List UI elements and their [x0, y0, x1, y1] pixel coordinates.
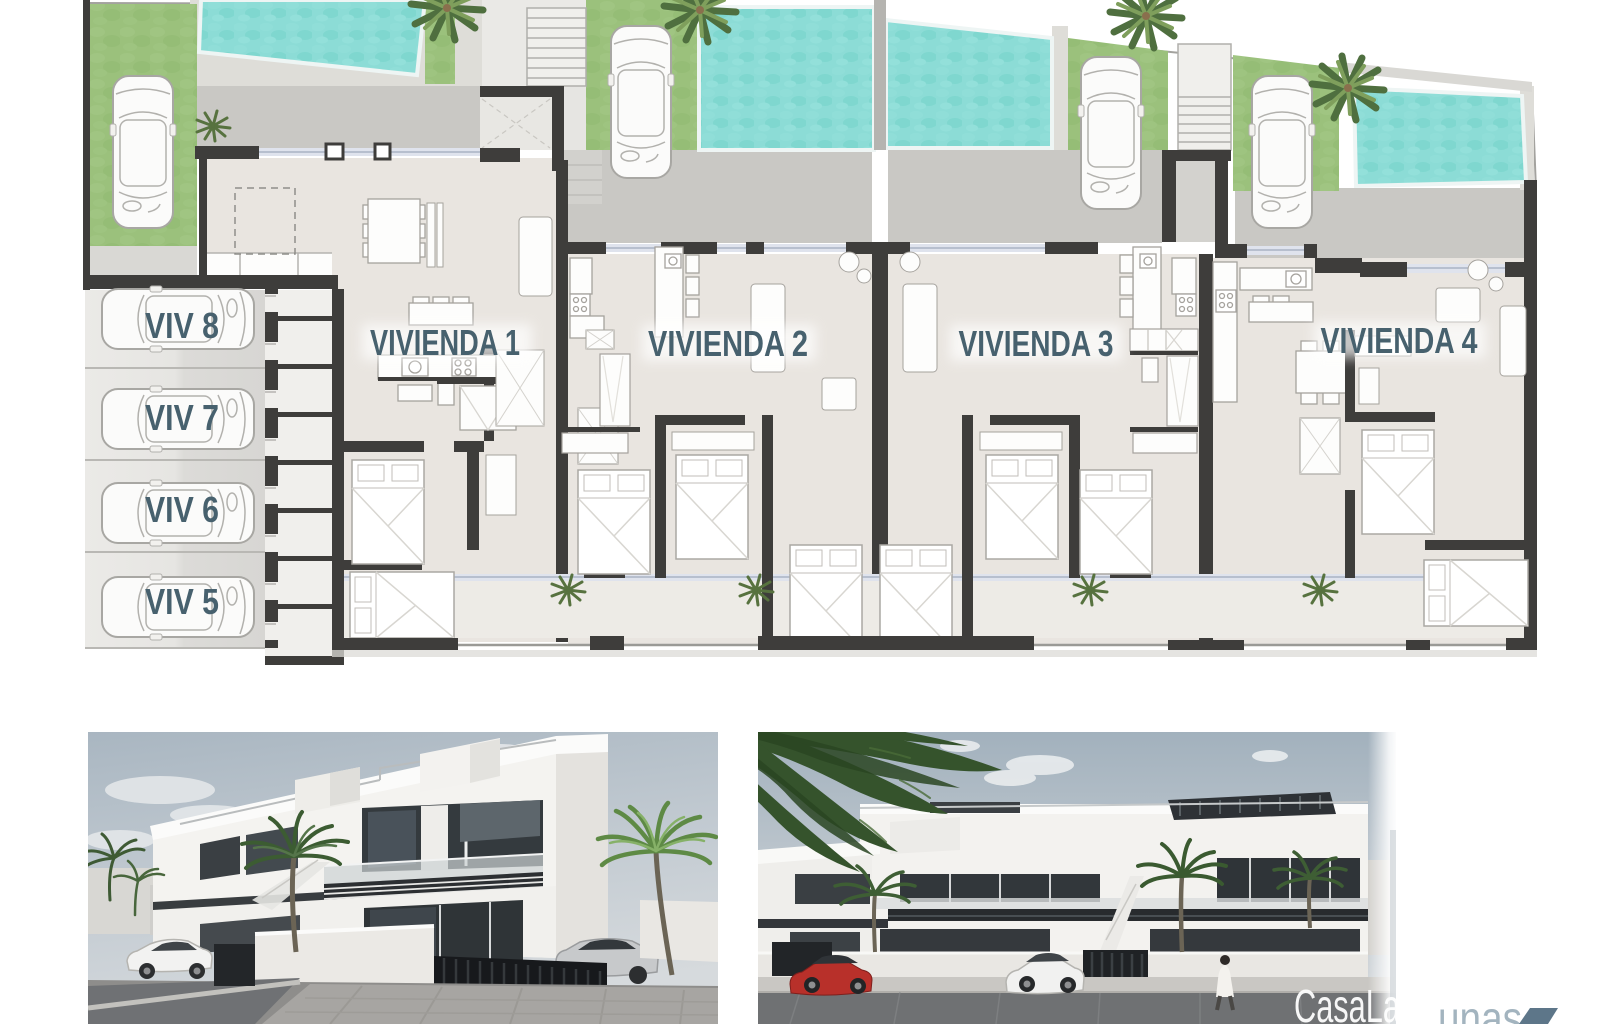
svg-text:VIVIENDA 4: VIVIENDA 4 [1321, 320, 1478, 361]
svg-text:VIV 5: VIV 5 [145, 581, 219, 622]
svg-text:VIV 7: VIV 7 [145, 397, 219, 438]
svg-text:VIVIENDA 2: VIVIENDA 2 [648, 323, 808, 364]
svg-text:VIV 6: VIV 6 [145, 489, 219, 530]
svg-text:VIVIENDA 3: VIVIENDA 3 [959, 323, 1114, 364]
svg-text:unas: unas [1438, 992, 1522, 1024]
svg-text:VIV 8: VIV 8 [145, 305, 219, 346]
svg-text:CasaLa: CasaLa [1294, 980, 1400, 1024]
svg-text:VIVIENDA 1: VIVIENDA 1 [370, 322, 520, 363]
